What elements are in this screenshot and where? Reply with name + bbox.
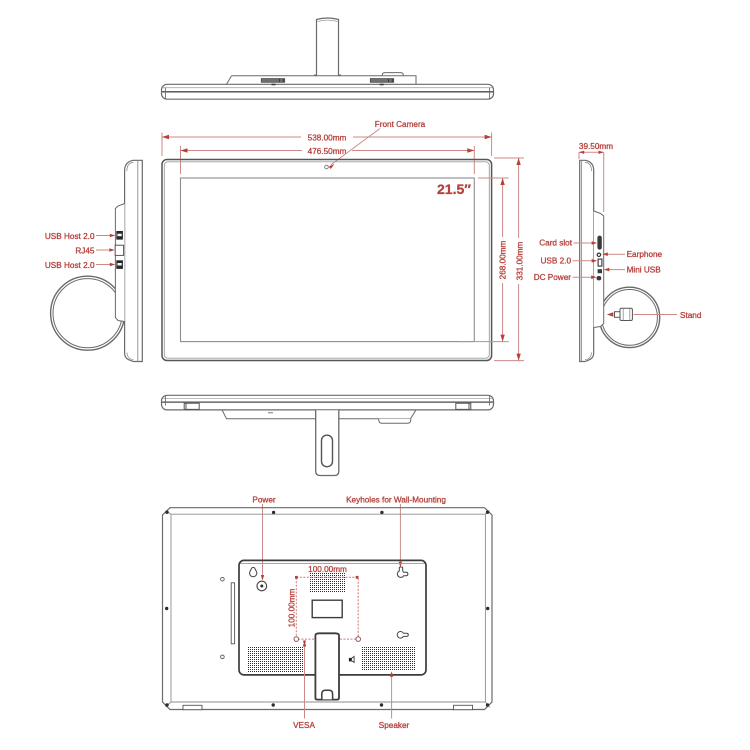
svg-text:Earphone: Earphone <box>627 250 663 259</box>
svg-text:21.5″: 21.5″ <box>437 181 471 197</box>
svg-text:USB Host 2.0: USB Host 2.0 <box>45 232 95 241</box>
svg-text:Front Camera: Front Camera <box>375 120 426 129</box>
svg-text:476.50mm: 476.50mm <box>308 147 347 156</box>
svg-text:268.00mm: 268.00mm <box>498 240 507 279</box>
svg-text:Stand: Stand <box>680 311 702 320</box>
svg-text:100.00mm: 100.00mm <box>288 588 297 627</box>
svg-text:331.00mm: 331.00mm <box>515 241 524 280</box>
svg-text:DC Power: DC Power <box>534 273 572 282</box>
svg-text:USB Host 2.0: USB Host 2.0 <box>45 261 95 270</box>
svg-text:Mini USB: Mini USB <box>627 266 662 275</box>
svg-text:39.50mm: 39.50mm <box>579 142 613 151</box>
svg-text:Power: Power <box>252 496 275 505</box>
svg-text:USB 2.0: USB 2.0 <box>541 256 572 265</box>
svg-text:RJ45: RJ45 <box>75 247 95 256</box>
svg-text:100.00mm: 100.00mm <box>308 565 347 574</box>
svg-text:538.00mm: 538.00mm <box>308 134 347 143</box>
svg-text:VESA: VESA <box>293 721 315 730</box>
svg-text:Keyholes for Wall-Mounting: Keyholes for Wall-Mounting <box>346 496 446 505</box>
svg-text:Card slot: Card slot <box>539 239 572 248</box>
svg-text:Speaker: Speaker <box>379 721 410 730</box>
